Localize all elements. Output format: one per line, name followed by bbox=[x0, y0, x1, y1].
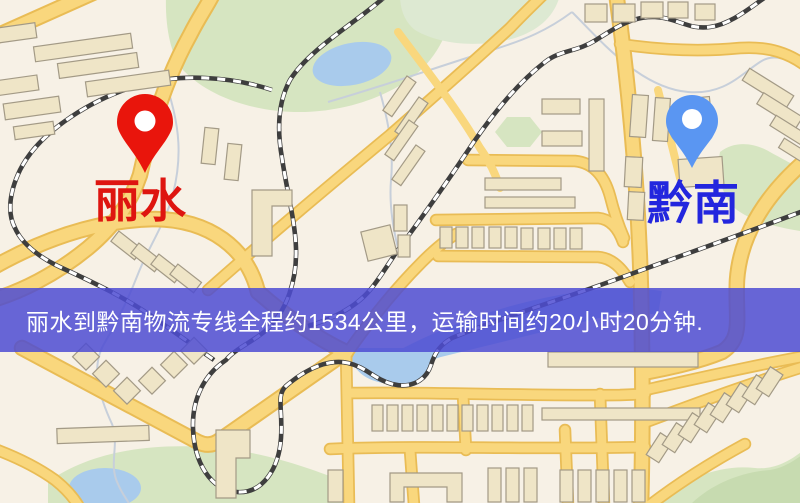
route-info-text: 丽水到黔南物流专线全程约1534公里，运输时间约20小时20分钟. bbox=[26, 303, 703, 337]
map-canvas[interactable]: 丽水 黔南 bbox=[0, 0, 800, 503]
origin-pin-hole bbox=[135, 111, 156, 132]
map-screenshot: 丽水 黔南 丽水到黔南物流专线全程约1534公里，运输时间约20小时20分钟. bbox=[0, 0, 800, 503]
origin-label: 丽水 bbox=[94, 175, 187, 227]
route-info-banner: 丽水到黔南物流专线全程约1534公里，运输时间约20小时20分钟. bbox=[0, 288, 800, 352]
destination-pin-hole bbox=[682, 109, 702, 129]
destination-label: 黔南 bbox=[647, 177, 739, 229]
